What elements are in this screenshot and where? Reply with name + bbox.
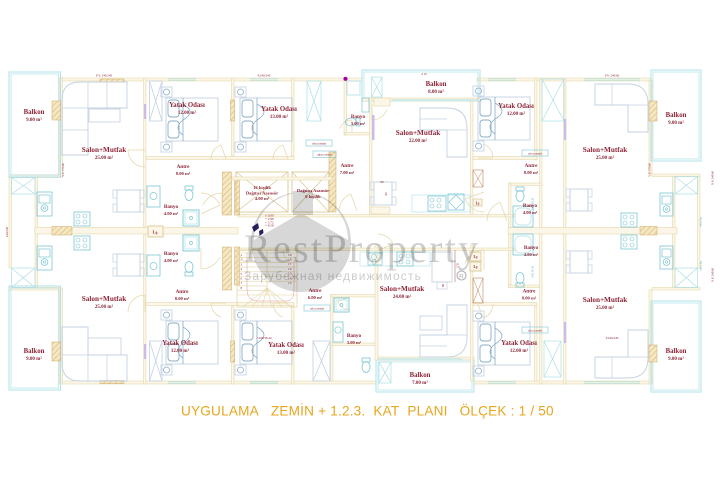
svg-text:vitra 4g: vitra 4g (699, 261, 703, 271)
svg-text:Banyo: Banyo (164, 251, 179, 257)
svg-text:3.00 m²: 3.00 m² (351, 121, 366, 126)
svg-text:Salon+Mutfak: Salon+Mutfak (82, 146, 126, 154)
svg-text:Зарубежная недвижимость: Зарубежная недвижимость (244, 269, 422, 283)
svg-text:UYGULAMA ZEMİN + 1.2.3. KAT: UYGULAMA ZEMİN + 1.2.3. KAT PLANI ÖLÇEK … (181, 404, 554, 419)
svg-text:6: 6 (241, 277, 243, 281)
svg-text:8.00 m²: 8.00 m² (428, 89, 444, 95)
svg-text:R: R (459, 274, 464, 281)
svg-text:7.00 m²: 7.00 m² (340, 170, 355, 175)
svg-text:vitra 4g: vitra 4g (699, 217, 703, 227)
svg-text:4.00 m²: 4.00 m² (164, 211, 179, 216)
svg-text:oda ş mask: oda ş mask (312, 142, 327, 146)
svg-text:13.00 m²: 13.00 m² (277, 350, 296, 356)
svg-text:13.00 m²: 13.00 m² (270, 114, 289, 120)
svg-text:N.K 240/60: N.K 240/60 (711, 267, 715, 282)
svg-text:Lş: Lş (476, 202, 480, 206)
svg-text:240/240: 240/240 (5, 226, 9, 237)
svg-text:Dağıtıcı Asansör: Dağıtıcı Asansör (246, 191, 278, 196)
svg-text:P.240/240: P.240/240 (606, 336, 619, 340)
svg-text:9.00 m²: 9.00 m² (668, 120, 684, 126)
svg-text:Antre: Antre (525, 163, 539, 169)
svg-text:24.00 m²: 24.00 m² (393, 294, 412, 300)
svg-text:4.00 m²: 4.00 m² (524, 252, 539, 257)
svg-text:Yatak Odası: Yatak Odası (268, 342, 304, 349)
svg-text:oda ş mask: oda ş mask (528, 329, 543, 333)
svg-text:6.00 m²: 6.00 m² (308, 295, 323, 300)
svg-text:Yatak Odası: Yatak Odası (498, 103, 534, 110)
svg-text:Banyo: Banyo (347, 333, 362, 339)
svg-text:4.00 m²: 4.00 m² (523, 210, 538, 215)
svg-text:Banyo: Banyo (351, 114, 366, 120)
svg-text:Balkon: Balkon (666, 112, 687, 119)
svg-text:3: 3 (241, 262, 243, 266)
svg-text:3.00 m²: 3.00 m² (347, 340, 362, 345)
svg-text:Banyo: Banyo (523, 203, 538, 209)
svg-text:ağaç ş mask: ağaç ş mask (317, 153, 332, 157)
svg-text:Y.D 170/60: Y.D 170/60 (61, 163, 65, 177)
svg-text:Salon+Mutfak: Salon+Mutfak (380, 285, 424, 293)
svg-text:Banyo: Banyo (164, 204, 179, 210)
svg-text:5: 5 (241, 272, 243, 276)
svg-text:P.Y. 240/240: P.Y. 240/240 (96, 74, 113, 78)
svg-text:8.00 m²: 8.00 m² (176, 171, 191, 176)
svg-text:Banyo: Banyo (524, 245, 539, 251)
svg-text:Balkon: Balkon (24, 109, 45, 116)
svg-text:Salon+Mutfak: Salon+Mutfak (82, 295, 126, 303)
svg-text:7.048/38.40: 7.048/38.40 (256, 336, 272, 340)
svg-text:7: 7 (241, 281, 243, 285)
svg-text:25.00 m²: 25.00 m² (95, 155, 114, 161)
svg-text:P.Y. 240/60: P.Y. 240/60 (605, 74, 620, 78)
svg-text:80: 80 (380, 180, 384, 184)
svg-text:8.00 m²: 8.00 m² (524, 170, 539, 175)
svg-text:8.00 m²: 8.00 m² (175, 296, 190, 301)
svg-text:Salon+Mutfak: Salon+Mutfak (583, 146, 627, 154)
svg-text:8: 8 (241, 286, 243, 290)
svg-text:Antre: Antre (523, 289, 537, 295)
svg-text:12.00 m²: 12.00 m² (507, 111, 526, 117)
svg-text:YIK.DLB: YIK.DLB (531, 266, 535, 278)
svg-text:RestProperty: RestProperty (244, 226, 480, 271)
svg-text:7.00 m²: 7.00 m² (412, 380, 428, 386)
svg-text:22.00 m²: 22.00 m² (409, 138, 428, 144)
svg-text:25.00 m²: 25.00 m² (596, 155, 615, 161)
svg-text:Balkon: Balkon (410, 372, 431, 379)
svg-text:12.00 m²: 12.00 m² (178, 110, 197, 116)
svg-text:16 kişilik: 16 kişilik (253, 185, 271, 190)
svg-text:Balkon: Balkon (666, 348, 687, 355)
svg-text:12.00 m²: 12.00 m² (171, 348, 190, 354)
svg-text:Antre: Antre (177, 164, 191, 170)
svg-text:Lş.: Lş. (153, 230, 159, 235)
svg-text:Y.D 170/60: Y.D 170/60 (648, 163, 652, 177)
svg-text:Antre: Antre (176, 289, 190, 295)
svg-text:80: 80 (441, 284, 445, 288)
svg-text:Salon+Mutfak: Salon+Mutfak (396, 129, 440, 137)
svg-text:25.00 m²: 25.00 m² (95, 304, 114, 310)
svg-text:oda ş mask: oda ş mask (310, 307, 325, 311)
svg-text:Balkon: Balkon (24, 348, 45, 355)
svg-text:Yatak Odası: Yatak Odası (169, 102, 205, 109)
svg-text:Yatak Odası: Yatak Odası (501, 340, 537, 347)
svg-text:9.00 m²: 9.00 m² (668, 356, 684, 362)
svg-text:4 10: 4 10 (421, 72, 427, 76)
svg-text:Balkon: Balkon (426, 81, 447, 88)
svg-text:Yatak Odası: Yatak Odası (162, 340, 198, 347)
svg-text:oda ş mask: oda ş mask (528, 152, 543, 156)
svg-text:Yatak Odası: Yatak Odası (261, 106, 297, 113)
svg-text:45: 45 (384, 192, 388, 196)
svg-text:4: 4 (241, 267, 243, 271)
svg-text:Antre: Antre (341, 163, 355, 169)
svg-text:25.00 m²: 25.00 m² (596, 305, 615, 311)
svg-text:9.00 m²: 9.00 m² (26, 356, 42, 362)
svg-text:Salon+Mutfak: Salon+Mutfak (583, 296, 627, 304)
svg-text:N.K 240/60: N.K 240/60 (711, 170, 715, 185)
svg-text:9.00 m²: 9.00 m² (26, 117, 42, 123)
svg-text:4.00 m²: 4.00 m² (255, 196, 270, 201)
svg-text:12.00 m²: 12.00 m² (510, 348, 529, 354)
svg-text:8.00 m²: 8.00 m² (522, 296, 537, 301)
svg-text:4.00 m²: 4.00 m² (164, 258, 179, 263)
svg-text:P.240/240: P.240/240 (258, 74, 271, 78)
